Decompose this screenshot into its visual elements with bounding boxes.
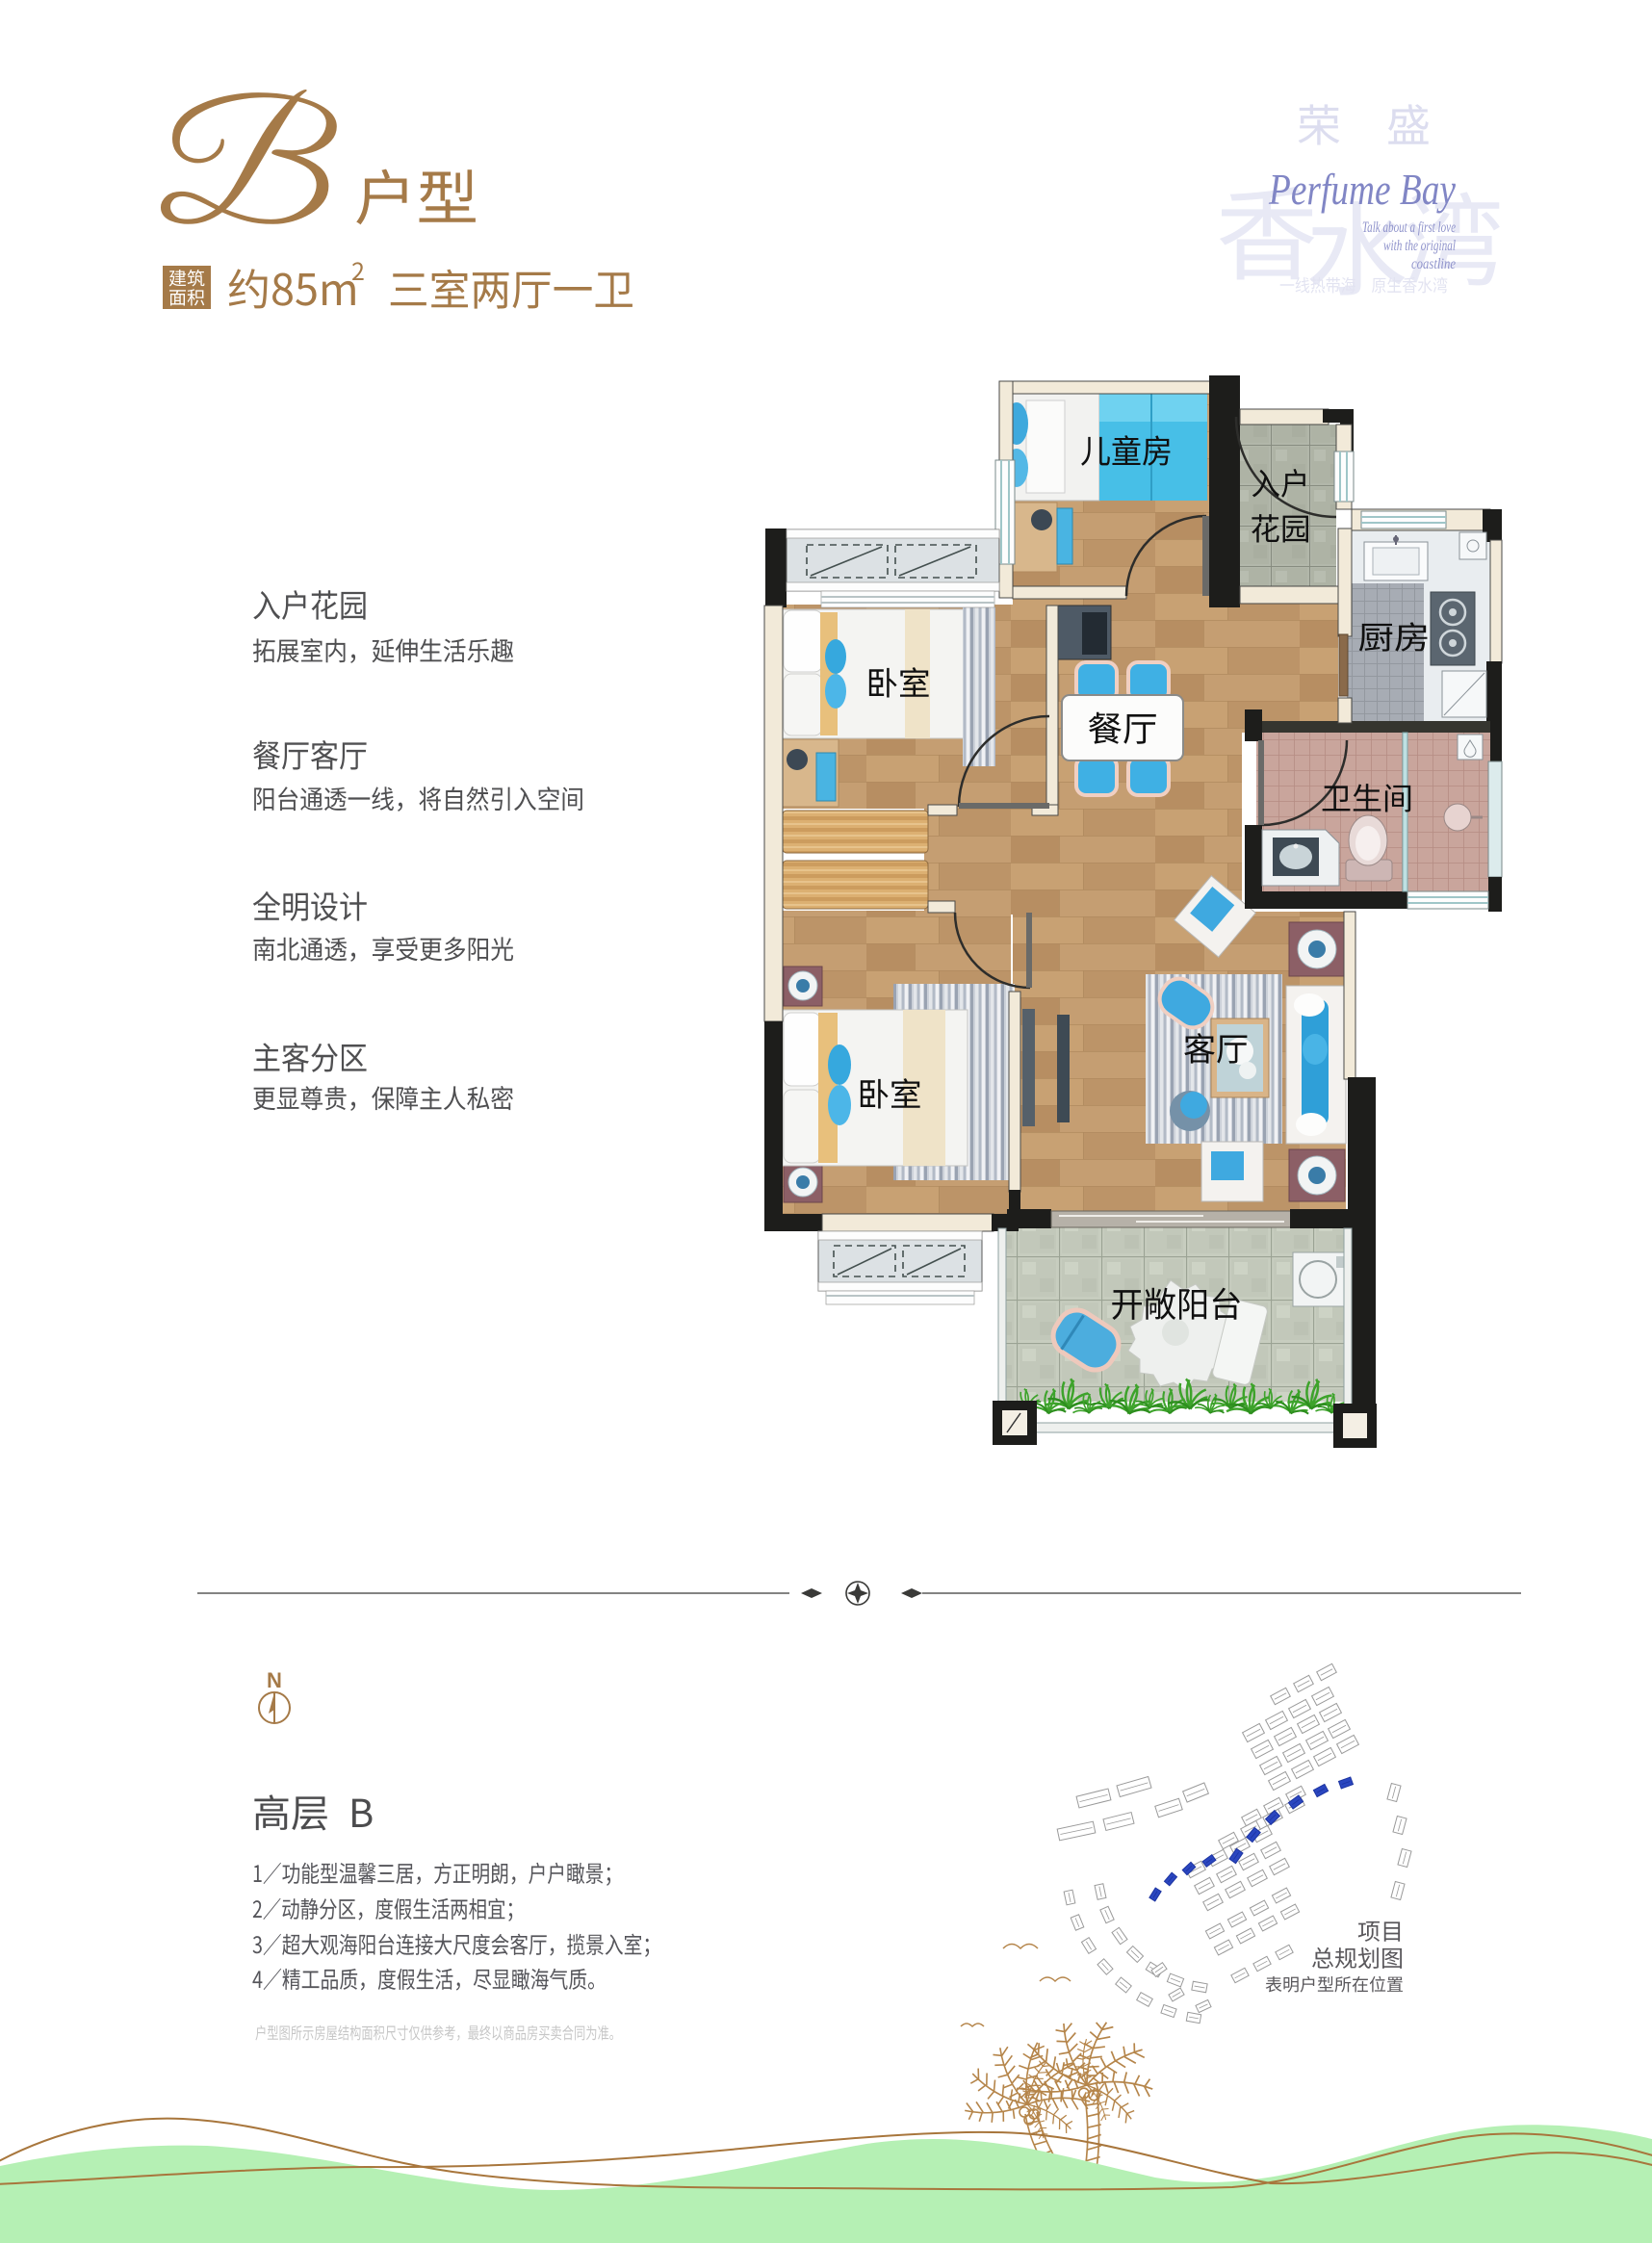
svg-text:N: N bbox=[267, 1668, 282, 1692]
svg-text:with the original: with the original bbox=[1383, 238, 1456, 254]
svg-text:coastline: coastline bbox=[1411, 256, 1456, 272]
svg-text:Perfume Bay: Perfume Bay bbox=[1268, 165, 1456, 214]
svg-text:Talk about a first love: Talk about a first love bbox=[1362, 219, 1456, 236]
